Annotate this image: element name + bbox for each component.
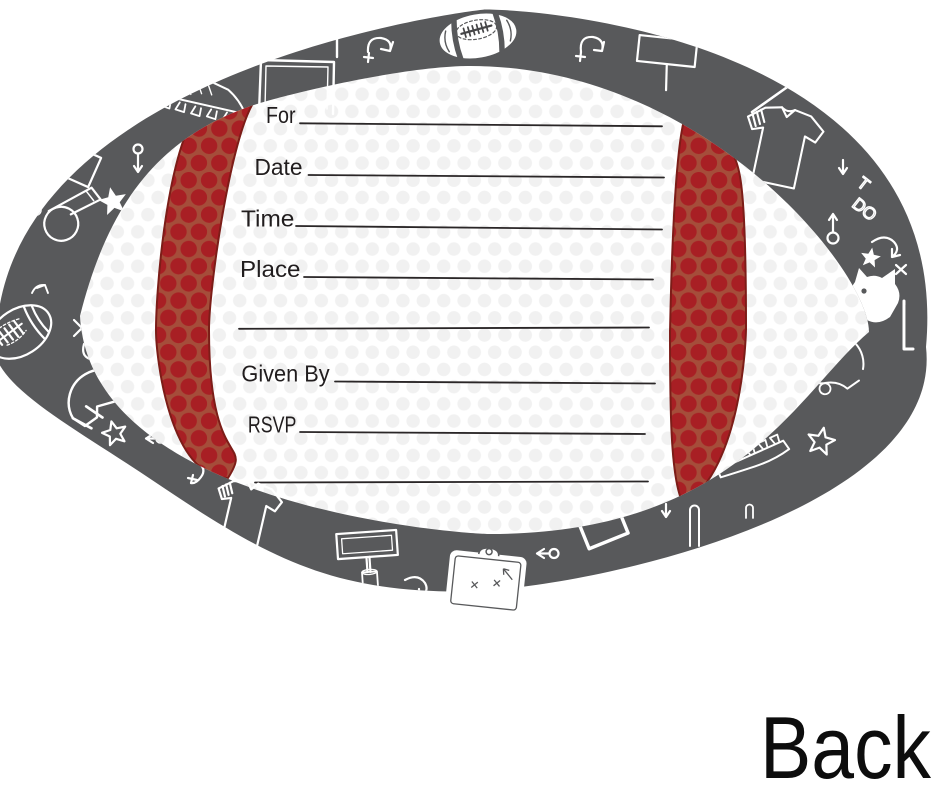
svg-text:For: For bbox=[266, 102, 296, 128]
svg-text:Place: Place bbox=[240, 256, 301, 282]
svg-text:Time: Time bbox=[241, 205, 294, 231]
svg-text:RSVP: RSVP bbox=[248, 412, 297, 438]
svg-text:Back: Back bbox=[760, 699, 932, 787]
svg-text:Given By: Given By bbox=[241, 361, 330, 387]
svg-text:Date: Date bbox=[255, 154, 303, 180]
